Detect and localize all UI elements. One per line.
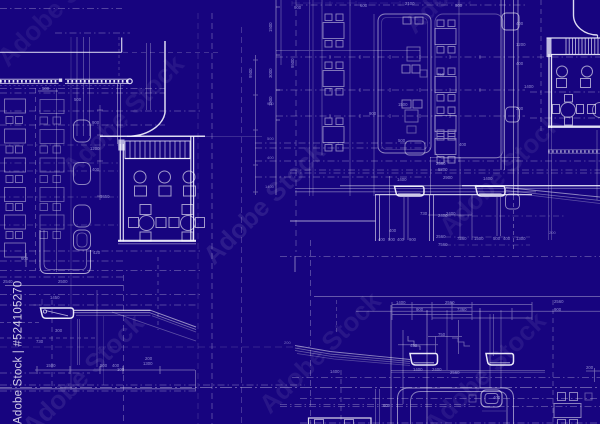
svg-text:9500: 9500 [290, 58, 295, 68]
svg-text:600: 600 [383, 403, 391, 408]
svg-text:300: 300 [55, 328, 63, 333]
svg-text:3000: 3000 [268, 68, 273, 78]
svg-text:7360: 7360 [457, 307, 467, 312]
svg-text:100: 100 [117, 367, 125, 372]
svg-text:200: 200 [549, 230, 556, 235]
svg-text:2560: 2560 [445, 300, 455, 305]
svg-text:730: 730 [420, 211, 428, 216]
svg-text:900: 900 [416, 307, 424, 312]
svg-text:2500: 2500 [58, 279, 68, 284]
svg-text:400: 400 [397, 237, 405, 242]
svg-text:500: 500 [267, 136, 274, 141]
svg-text:1200: 1200 [516, 42, 526, 47]
svg-text:900: 900 [409, 237, 417, 242]
svg-text:1400: 1400 [330, 369, 340, 374]
svg-text:750: 750 [438, 332, 446, 337]
svg-text:750: 750 [437, 72, 445, 77]
svg-text:900: 900 [554, 307, 562, 312]
svg-text:1300: 1300 [143, 361, 153, 366]
svg-text:500: 500 [388, 237, 396, 242]
svg-text:200: 200 [586, 365, 594, 370]
svg-text:500: 500 [42, 86, 50, 91]
svg-text:500: 500 [74, 97, 82, 102]
svg-text:400: 400 [378, 237, 386, 242]
svg-text:420: 420 [93, 250, 101, 255]
svg-text:5800: 5800 [438, 167, 448, 172]
svg-text:900: 900 [267, 101, 274, 106]
svg-text:7560: 7560 [438, 242, 448, 247]
svg-text:1400: 1400 [524, 84, 534, 89]
svg-text:2560: 2560 [436, 161, 446, 166]
svg-text:1400: 1400 [413, 367, 423, 372]
svg-text:600: 600 [21, 256, 29, 261]
svg-text:2560: 2560 [554, 299, 564, 304]
svg-text:2560: 2560 [450, 370, 460, 375]
svg-text:1500: 1500 [46, 363, 56, 368]
svg-text:600: 600 [360, 3, 368, 8]
svg-text:1500: 1500 [398, 102, 408, 107]
svg-text:900: 900 [294, 5, 302, 10]
svg-text:1450: 1450 [100, 194, 110, 199]
svg-text:2400: 2400 [432, 367, 442, 372]
svg-text:1500: 1500 [268, 22, 273, 32]
svg-text:400: 400 [389, 228, 397, 233]
svg-text:900: 900 [455, 3, 463, 8]
svg-text:1400: 1400 [396, 300, 406, 305]
svg-text:500: 500 [398, 138, 406, 143]
svg-text:400: 400 [516, 61, 524, 66]
svg-text:730: 730 [36, 339, 44, 344]
svg-text:2560: 2560 [436, 234, 446, 239]
svg-text:9500: 9500 [248, 68, 253, 78]
svg-text:900: 900 [369, 111, 377, 116]
svg-text:1450: 1450 [50, 295, 60, 300]
svg-text:400: 400 [516, 21, 524, 26]
svg-text:200: 200 [145, 356, 153, 361]
svg-text:200: 200 [284, 340, 291, 345]
svg-text:1400: 1400 [397, 177, 407, 182]
svg-text:400: 400 [493, 395, 501, 400]
svg-text:Adobe Stock | #524105270: Adobe Stock | #524105270 [13, 281, 25, 424]
svg-text:400: 400 [267, 155, 274, 160]
svg-text:2900: 2900 [443, 175, 453, 180]
svg-text:400: 400 [459, 142, 467, 147]
